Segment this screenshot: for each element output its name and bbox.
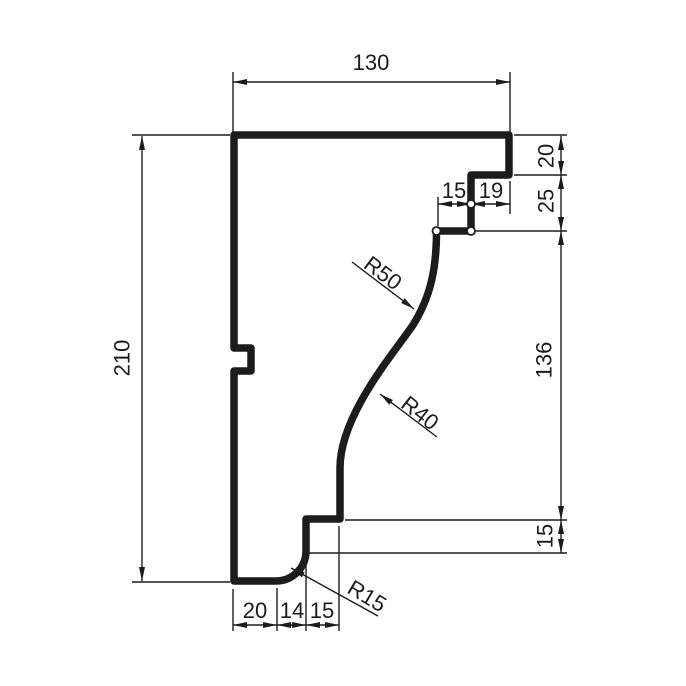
dim-label-width: 130: [353, 50, 390, 75]
radius-label-r40: R40: [396, 391, 443, 436]
technical-drawing-canvas: 130 210 20 25 136 15 15 19 20 14 15 R50 …: [0, 0, 686, 686]
node-marker: [433, 227, 441, 235]
dim-label-bottom-15: 15: [310, 598, 334, 623]
dim-label-right-15: 15: [533, 524, 558, 548]
dim-label-height: 210: [110, 340, 135, 377]
dim-label-step-19: 19: [479, 178, 503, 203]
node-marker: [467, 227, 475, 235]
radius-label-r15: R15: [343, 575, 390, 617]
dim-label-bottom-20: 20: [243, 598, 267, 623]
dimension-lines: [142, 82, 561, 625]
dim-label-right-20: 20: [534, 144, 559, 168]
radius-label-r50: R50: [359, 251, 406, 295]
node-marker: [467, 200, 475, 208]
extension-lines: [132, 72, 567, 631]
dim-label-bottom-14: 14: [280, 598, 304, 623]
drawing-area: 130 210 20 25 136 15 15 19 20 14 15 R50 …: [0, 0, 686, 686]
dim-label-right-25: 25: [534, 189, 559, 213]
dim-label-step-15: 15: [442, 178, 466, 203]
dim-label-right-136: 136: [532, 342, 557, 379]
